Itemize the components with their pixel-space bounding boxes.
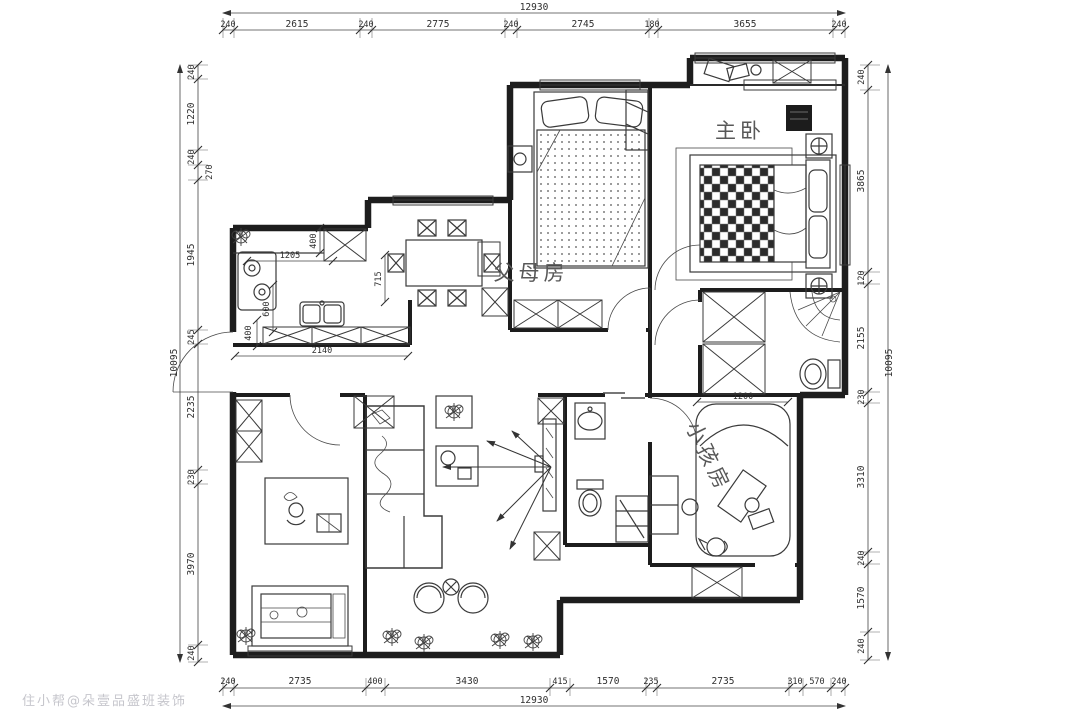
dim-bottom-2: 400 — [367, 677, 382, 687]
dim-left-9: 240 — [187, 645, 197, 660]
dim-left-total: 10095 — [169, 349, 180, 378]
dim-top-0: 240 — [220, 20, 235, 30]
room-label-master: 主卧 — [715, 119, 765, 143]
dim-left-1: 1220 — [186, 102, 197, 125]
shower — [790, 292, 840, 342]
dim-right-0: 240 — [857, 69, 867, 84]
dim-left-6: 2235 — [186, 396, 197, 419]
sofa — [366, 406, 442, 568]
dim-bottom-7: 2735 — [712, 676, 735, 687]
dim-right-3: 2155 — [856, 327, 867, 350]
dim-top-8: 240 — [831, 20, 846, 30]
dim-right-6: 240 — [857, 550, 867, 565]
dim-counter-depth: 600 — [262, 301, 272, 316]
kids-desk — [650, 476, 698, 534]
corner-column — [534, 532, 560, 560]
room-label-kids: 小孩房 — [681, 418, 735, 496]
bath-door-arc — [655, 300, 700, 345]
dim-top-4: 240 — [503, 20, 518, 30]
balcony-items — [704, 58, 761, 81]
dim-bottom-5: 1570 — [597, 676, 620, 687]
lounge-chairs — [414, 579, 488, 613]
dim-top-3: 2775 — [427, 19, 450, 30]
floor-plan-page: 12930 240 2615 240 2775 240 2745 180 365… — [0, 0, 1080, 716]
dim-bottom-10: 240 — [831, 677, 846, 687]
dim-top: 12930 240 2615 240 2775 240 2745 180 365… — [219, 2, 849, 38]
dim-top-total: 12930 — [520, 2, 549, 13]
counter-hatched — [263, 327, 410, 344]
entry-door-arc — [173, 332, 233, 392]
dim-left-5: 245 — [187, 329, 197, 344]
kids-bathroom — [575, 403, 648, 542]
dim-left-4: 1945 — [186, 244, 197, 267]
dim-bottom-1: 2735 — [289, 676, 312, 687]
dim-right-4: 230 — [857, 389, 867, 404]
dim-bottom-3: 3430 — [456, 676, 479, 687]
fridge — [324, 229, 366, 261]
sofa-side-table — [354, 396, 394, 428]
main-bathroom — [703, 292, 840, 394]
dim-right-1: 3865 — [856, 170, 867, 193]
dining-set — [388, 220, 500, 306]
dim-left-8: 3970 — [186, 552, 197, 575]
dim-left-0: 240 — [187, 64, 197, 79]
plant-3 — [491, 631, 509, 649]
dim-bottom-8: 310 — [787, 677, 802, 687]
dim-kitchen-run: 1205 — [280, 251, 300, 261]
dim-door-width: 400 — [244, 325, 254, 340]
plant-2 — [415, 634, 433, 652]
room-label-parents: 父母房 — [494, 261, 569, 285]
parents-wardrobe — [514, 300, 602, 328]
dim-dining-offset: 715 — [374, 271, 384, 286]
dim-kids-bed: 1200 — [733, 392, 753, 402]
dim-counter-run: 2140 — [312, 346, 332, 356]
dim-top-1: 2615 — [286, 19, 309, 30]
dim-bottom-0: 240 — [220, 677, 235, 687]
dim-bottom: 240 2735 400 3430 415 1570 235 2735 310 … — [219, 676, 849, 706]
study-wardrobe — [236, 400, 262, 462]
pedestal-sink — [575, 403, 605, 439]
dim-bottom-4: 415 — [552, 677, 567, 687]
plant-4 — [524, 633, 542, 651]
kitchen-sink — [300, 301, 344, 326]
master-bedroom — [676, 58, 836, 298]
bath-vanity — [703, 292, 765, 394]
dim-right-8: 240 — [857, 638, 867, 653]
parents-bed — [534, 92, 648, 268]
dim-top-5: 2745 — [572, 19, 595, 30]
dim-left: 240 1220 240 270 1945 245 2235 230 3970 … — [169, 61, 215, 666]
dim-kitchen-depth: 400 — [309, 233, 319, 248]
kids-room — [650, 404, 790, 598]
floor-plan-drawing: 12930 240 2615 240 2775 240 2745 180 365… — [0, 0, 1080, 716]
dim-left-2: 240 — [187, 149, 197, 164]
dim-bottom-6: 235 — [643, 677, 658, 687]
dim-top-2: 240 — [358, 20, 373, 30]
dim-bottom-total: 12930 — [520, 695, 549, 706]
master-bed — [690, 155, 836, 272]
coffee-table — [436, 446, 478, 486]
dim-right-2: 120 — [857, 270, 867, 285]
sliding-door — [603, 393, 645, 398]
dim-right-7: 1570 — [856, 586, 867, 609]
dim-right-total: 10095 — [884, 349, 895, 378]
tv-master — [786, 105, 812, 131]
dim-bottom-9: 570 — [809, 677, 824, 687]
dim-right-5: 3310 — [856, 465, 867, 488]
master-door-arc — [655, 245, 700, 290]
hall-column — [482, 288, 508, 316]
bath-shelf — [616, 496, 648, 542]
dim-top-7: 3655 — [734, 19, 757, 30]
study-door-arc — [290, 395, 340, 445]
toilet-kids — [577, 480, 603, 516]
toilet-main — [800, 359, 840, 389]
dim-right: 240 3865 120 2155 230 3310 240 1570 240 … — [856, 61, 895, 664]
signal-arrows — [443, 431, 551, 549]
dim-top-6: 180 — [644, 20, 659, 30]
study-cabinet — [252, 586, 348, 646]
living-room — [354, 396, 564, 652]
study-room — [236, 400, 348, 646]
plant-table — [445, 403, 463, 421]
kettle-stool — [699, 538, 727, 556]
plant-1 — [383, 628, 401, 646]
watermark: 住小帮@朵壹品盛班装饰 — [22, 690, 187, 709]
kids-balcony-box — [692, 567, 742, 598]
dim-left-3: 270 — [205, 164, 215, 179]
dim-left-7: 230 — [187, 469, 197, 484]
parents-door-arc — [608, 288, 650, 330]
study-desk — [265, 478, 348, 544]
